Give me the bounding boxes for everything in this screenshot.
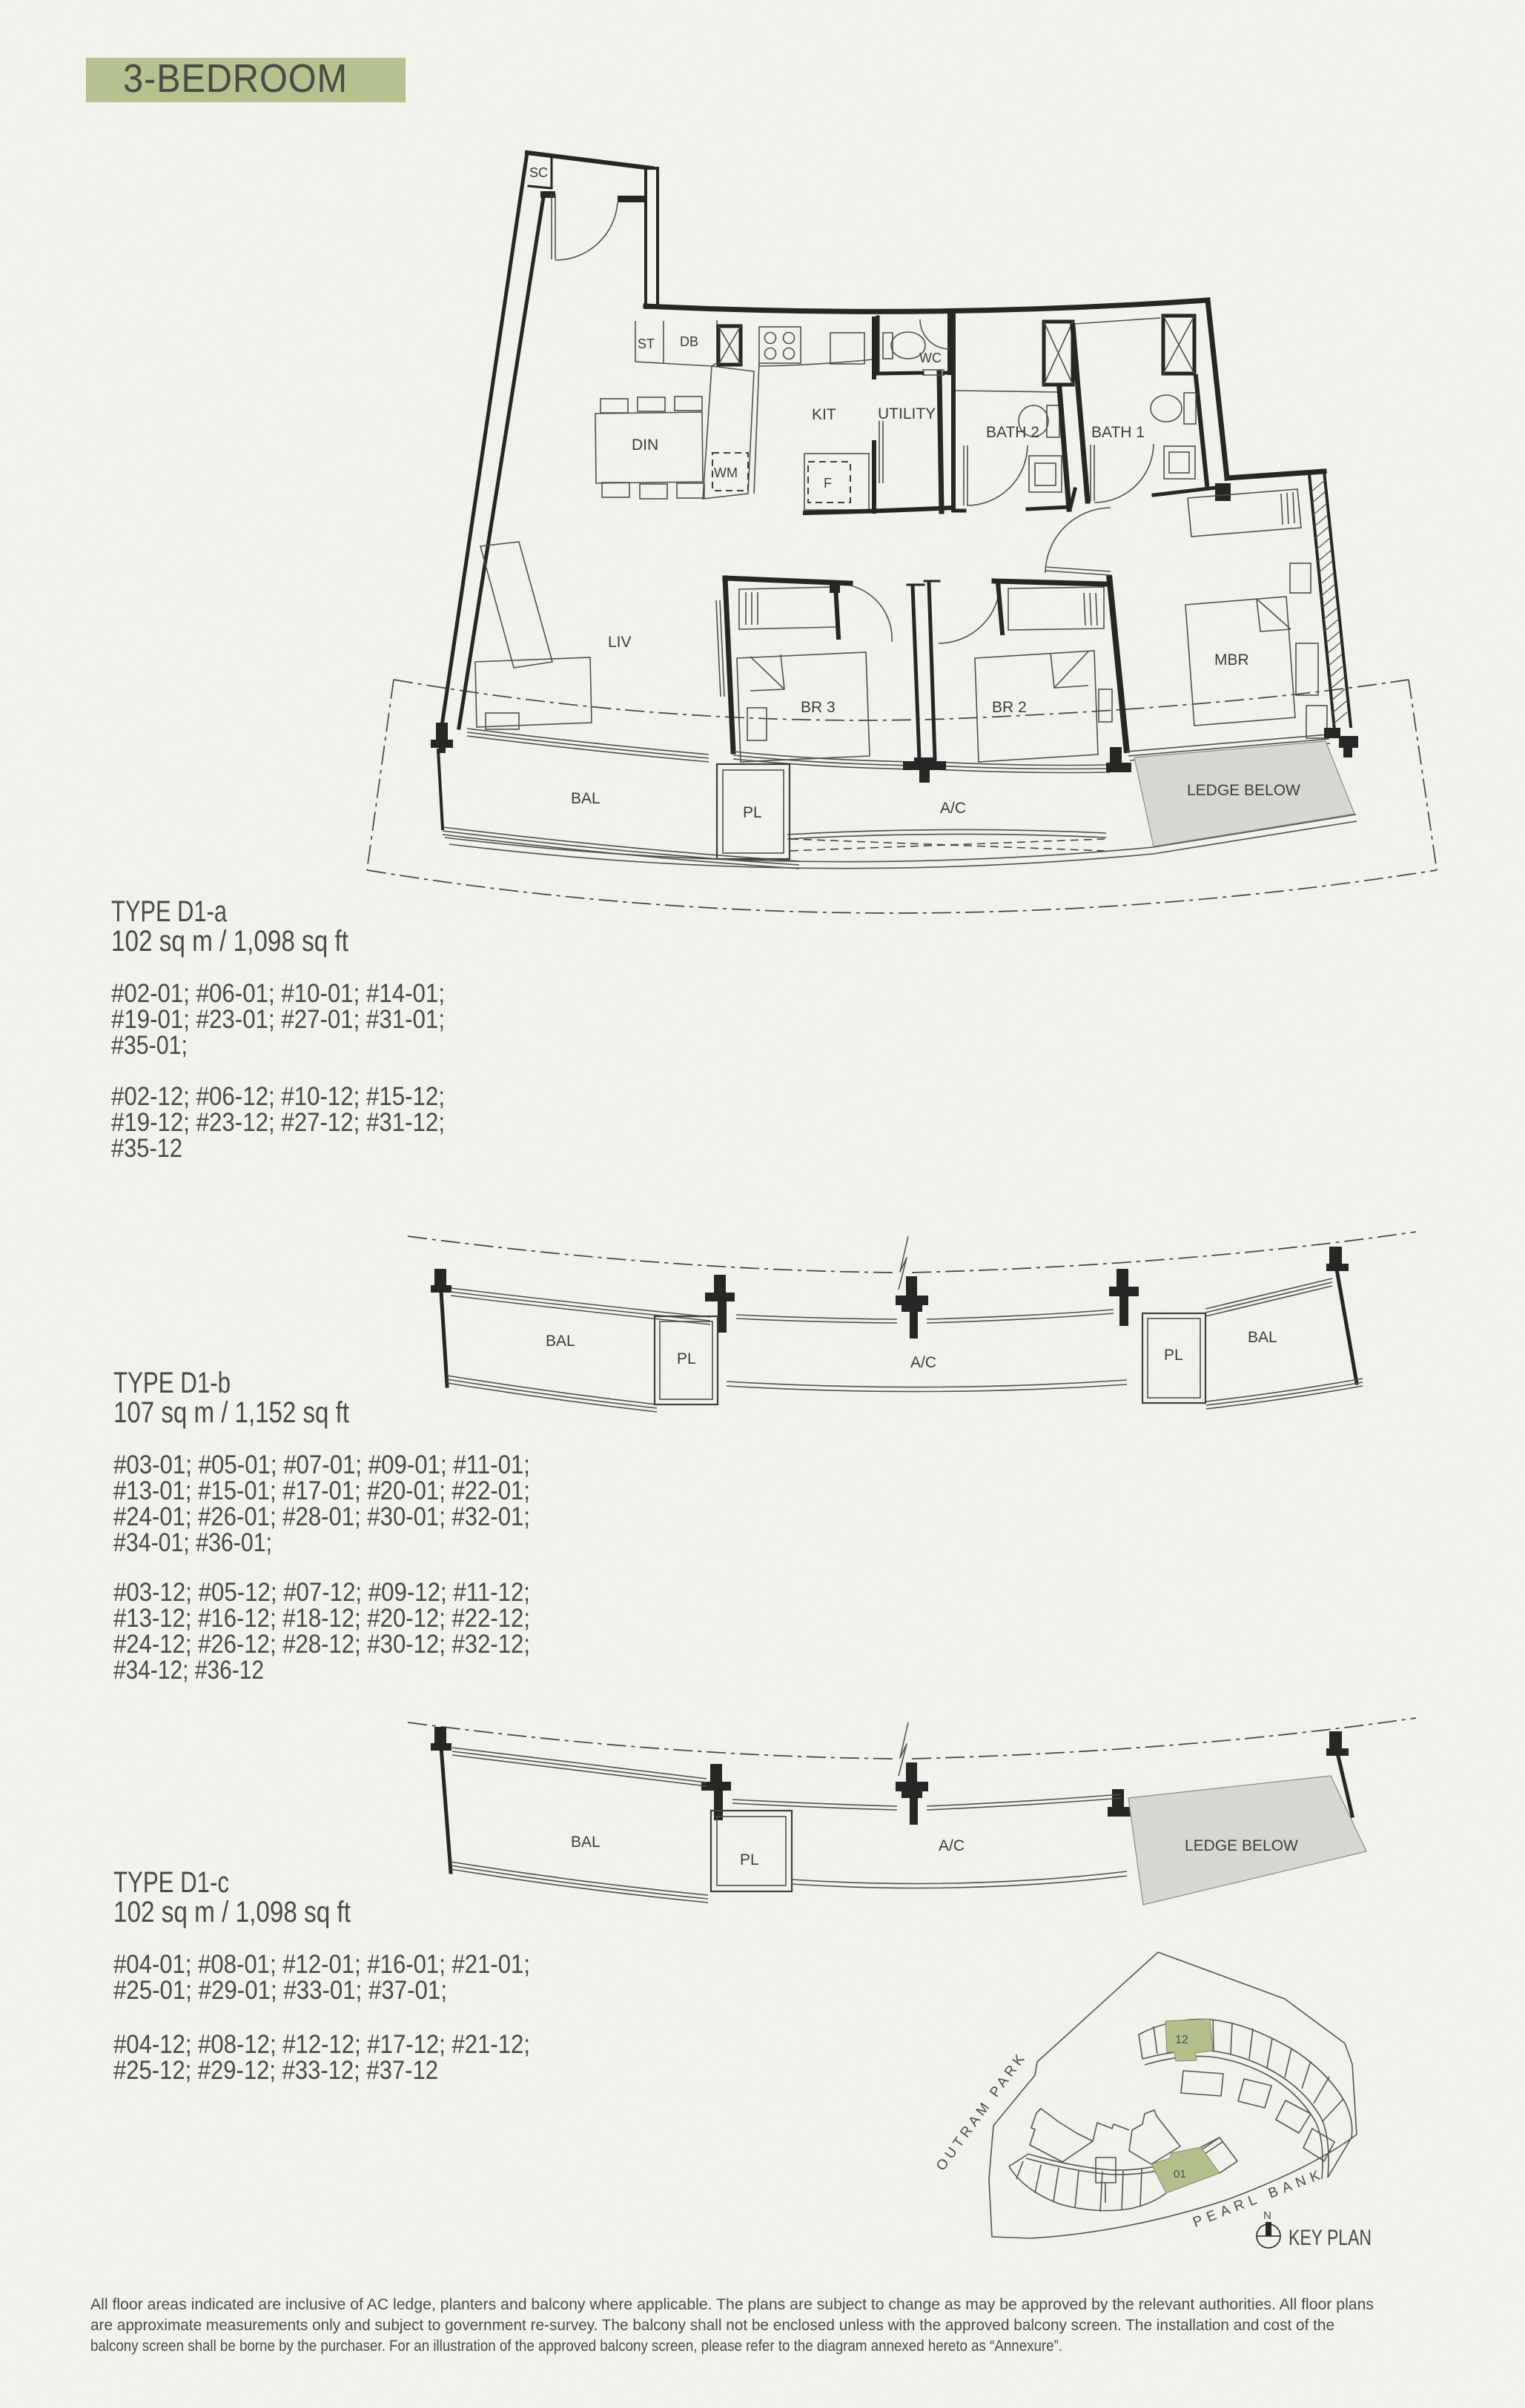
svg-text:#25-01; #29-01; #33-01; #37: #25-01; #29-01; #33-01; #37-01; <box>113 1976 447 2005</box>
svg-text:F: F <box>824 476 832 491</box>
svg-text:BAL: BAL <box>571 1834 601 1851</box>
svg-text:KIT: KIT <box>812 406 836 423</box>
svg-text:PL: PL <box>1164 1347 1183 1364</box>
svg-text:3-BEDROOM: 3-BEDROOM <box>123 56 348 101</box>
svg-text:All floor areas indicated are: All floor areas indicated are inclusive … <box>90 2296 1374 2313</box>
svg-text:PL: PL <box>743 804 762 821</box>
svg-text:102 sq m / 1,098 sq ft: 102 sq m / 1,098 sq ft <box>111 925 348 958</box>
svg-text:LEDGE BELOW: LEDGE BELOW <box>1185 1837 1298 1854</box>
svg-text:MBR: MBR <box>1214 651 1249 669</box>
svg-text:TYPE D1-c: TYPE D1-c <box>113 1866 229 1899</box>
svg-text:DB: DB <box>680 334 698 349</box>
svg-text:#35-01;: #35-01; <box>111 1031 188 1060</box>
svg-text:UTILITY: UTILITY <box>878 405 936 422</box>
svg-text:#13-12; #16-12; #18-12; #20: #13-12; #16-12; #18-12; #20-12; #22-12; <box>113 1604 530 1633</box>
svg-text:#13-01; #15-01; #17-01; #20: #13-01; #15-01; #17-01; #20-01; #22-01; <box>113 1476 530 1505</box>
svg-text:#34-01; #36-01;: #34-01; #36-01; <box>113 1528 272 1557</box>
svg-text:ST: ST <box>638 336 655 351</box>
svg-text:12: 12 <box>1175 2034 1188 2046</box>
svg-text:WM: WM <box>714 465 738 480</box>
svg-text:TYPE D1-b: TYPE D1-b <box>113 1367 231 1399</box>
svg-text:107 sq m / 1,152 sq ft: 107 sq m / 1,152 sq ft <box>113 1396 349 1429</box>
svg-text:A/C: A/C <box>940 800 966 817</box>
svg-text:#34-12; #36-12: #34-12; #36-12 <box>113 1656 264 1685</box>
svg-text:DIN: DIN <box>632 437 658 454</box>
svg-text:#24-01; #26-01; #28-01; #30: #24-01; #26-01; #28-01; #30-01; #32-01; <box>113 1502 530 1531</box>
svg-text:102 sq m / 1,098 sq ft: 102 sq m / 1,098 sq ft <box>113 1896 351 1928</box>
svg-text:WC: WC <box>919 351 942 365</box>
svg-text:BR 3: BR 3 <box>801 699 836 716</box>
svg-text:KEY PLAN: KEY PLAN <box>1289 2226 1372 2250</box>
svg-text:#03-12; #05-12; #07-12; #09: #03-12; #05-12; #07-12; #09-12; #11-12; <box>113 1578 530 1607</box>
svg-text:#19-01; #23-01; #27-01; #31: #19-01; #23-01; #27-01; #31-01; <box>111 1005 445 1034</box>
svg-text:are approximate measurements o: are approximate measurements only and su… <box>90 2317 1334 2334</box>
svg-text:LEDGE BELOW: LEDGE BELOW <box>1187 782 1300 799</box>
svg-text:#02-12; #06-12; #10-12; #15: #02-12; #06-12; #10-12; #15-12; <box>111 1082 445 1111</box>
svg-text:#25-12; #29-12; #33-12; #37: #25-12; #29-12; #33-12; #37-12 <box>113 2056 438 2085</box>
svg-text:#02-01; #06-01; #10-01; #14: #02-01; #06-01; #10-01; #14-01; <box>111 979 445 1008</box>
svg-text:#19-12; #23-12; #27-12; #31: #19-12; #23-12; #27-12; #31-12; <box>111 1108 445 1137</box>
svg-text:A/C: A/C <box>939 1837 965 1854</box>
svg-text:01: 01 <box>1174 2168 1186 2180</box>
svg-text:A/C: A/C <box>910 1354 936 1371</box>
svg-text:#04-01; #08-01; #12-01; #16: #04-01; #08-01; #12-01; #16-01; #21-01; <box>113 1950 530 1979</box>
svg-text:BATH 1: BATH 1 <box>1091 424 1145 441</box>
svg-text:LIV: LIV <box>608 634 632 651</box>
svg-text:BR 2: BR 2 <box>992 699 1027 716</box>
svg-text:BAL: BAL <box>1248 1329 1277 1346</box>
svg-text:SC: SC <box>529 165 548 180</box>
svg-text:#03-01; #05-01; #07-01; #09: #03-01; #05-01; #07-01; #09-01; #11-01; <box>113 1450 530 1479</box>
svg-text:#35-12: #35-12 <box>111 1134 182 1163</box>
svg-text:N: N <box>1263 2209 1271 2222</box>
svg-text:BAL: BAL <box>546 1333 575 1350</box>
svg-text:#24-12; #26-12; #28-12; #30: #24-12; #26-12; #28-12; #30-12; #32-12; <box>113 1630 530 1659</box>
svg-text:BAL: BAL <box>571 790 601 807</box>
svg-text:#04-12; #08-12; #12-12; #17: #04-12; #08-12; #12-12; #17-12; #21-12; <box>113 2030 530 2059</box>
svg-text:PL: PL <box>677 1350 696 1367</box>
svg-text:TYPE D1-a: TYPE D1-a <box>111 895 228 928</box>
svg-text:balcony screen shall be borne: balcony screen shall be borne by the pur… <box>90 2338 1062 2355</box>
svg-text:PL: PL <box>740 1851 759 1868</box>
svg-text:BATH 2: BATH 2 <box>986 424 1039 441</box>
